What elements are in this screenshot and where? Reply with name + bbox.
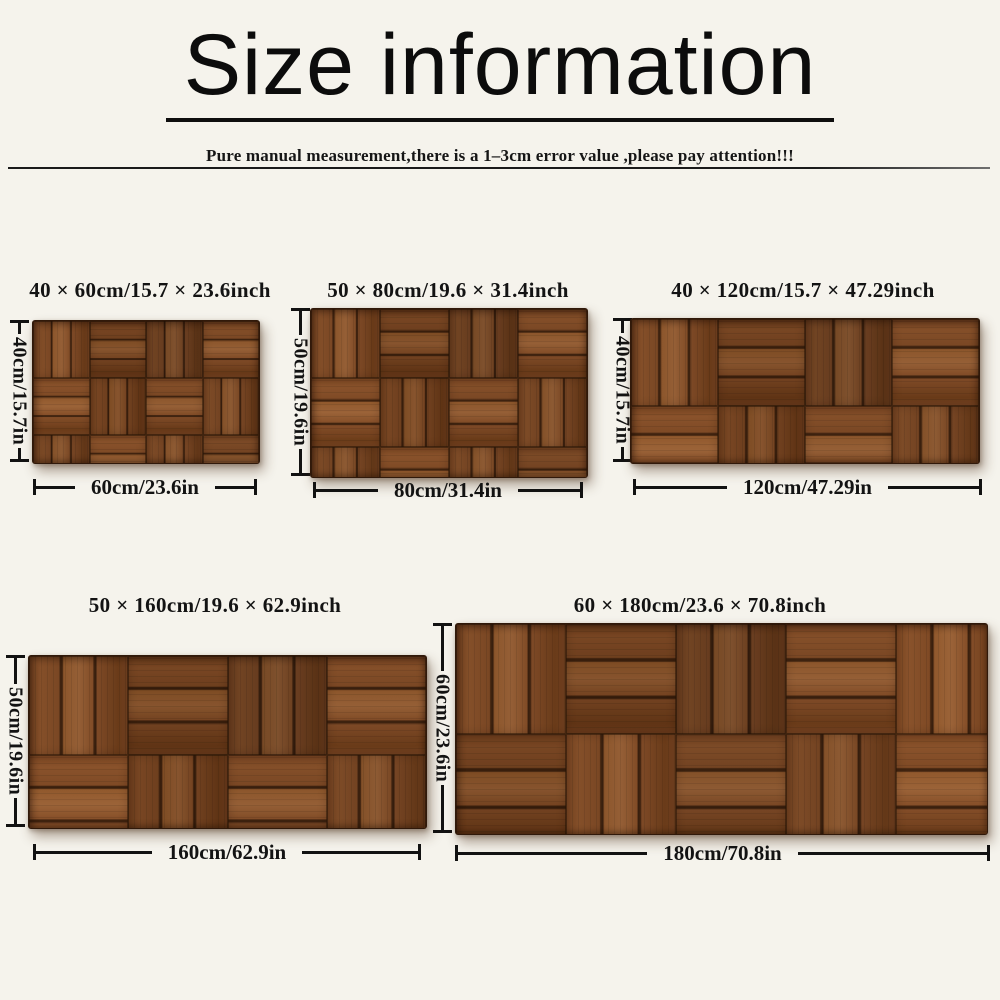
parquet-tile bbox=[456, 624, 566, 734]
parquet-tile bbox=[380, 447, 449, 478]
parquet-tile bbox=[146, 378, 203, 435]
parquet-tile bbox=[449, 447, 518, 478]
dimension-line bbox=[441, 785, 444, 830]
dimension-line bbox=[299, 449, 302, 473]
width-dimension-label: 80cm/31.4in bbox=[394, 478, 502, 503]
parquet-tile bbox=[33, 378, 90, 435]
parquet-tile bbox=[896, 734, 988, 835]
mat-preview-50x80 bbox=[310, 308, 588, 478]
parquet-tile bbox=[892, 406, 979, 464]
width-dimension: 180cm/70.8in bbox=[455, 842, 990, 864]
size-label: 60 × 180cm/23.6 × 70.8inch bbox=[500, 593, 900, 618]
parquet-tile bbox=[90, 321, 147, 378]
parquet-tile bbox=[90, 378, 147, 435]
parquet-tile bbox=[676, 624, 786, 734]
parquet-tile bbox=[631, 319, 718, 406]
mat-preview-50x160 bbox=[28, 655, 427, 829]
figure-60x180: 60 × 180cm/23.6 × 70.8inch 60cm/23.6in 1… bbox=[430, 588, 1000, 888]
dimension-cap bbox=[580, 482, 583, 498]
dimension-line bbox=[18, 448, 21, 459]
parquet-tile bbox=[33, 435, 90, 464]
dimension-cap bbox=[979, 479, 982, 495]
height-dimension: 40cm/15.7in bbox=[612, 318, 632, 462]
mat-preview-40x120 bbox=[630, 318, 980, 464]
parquet-tile bbox=[311, 378, 380, 447]
parquet-tile bbox=[146, 435, 203, 464]
parquet-tile bbox=[327, 656, 426, 755]
parquet-tile bbox=[228, 755, 327, 829]
dimension-line bbox=[798, 852, 987, 855]
dimension-cap bbox=[6, 824, 25, 827]
dimension-cap bbox=[613, 459, 632, 462]
dimension-line bbox=[215, 486, 254, 489]
parquet-tile bbox=[566, 624, 676, 734]
width-dimension-label: 160cm/62.9in bbox=[168, 840, 286, 865]
dimension-line bbox=[636, 486, 727, 489]
parquet-tile bbox=[786, 734, 896, 835]
width-dimension-label: 180cm/70.8in bbox=[663, 841, 781, 866]
parquet-tile bbox=[676, 734, 786, 835]
dimension-line bbox=[518, 489, 580, 492]
parquet-tile bbox=[805, 319, 892, 406]
height-dimension: 50cm/19.6in bbox=[5, 655, 25, 827]
parquet-tile bbox=[203, 435, 260, 464]
dimension-cap bbox=[418, 844, 421, 860]
parquet-tile bbox=[327, 755, 426, 829]
dimension-cap bbox=[433, 830, 452, 833]
parquet-tile bbox=[518, 447, 587, 478]
page-title-text: Size information bbox=[166, 22, 835, 122]
dimension-line bbox=[441, 626, 444, 671]
parquet-tile bbox=[518, 378, 587, 447]
height-dimension-label: 50cm/19.6in bbox=[289, 338, 312, 446]
parquet-tile bbox=[786, 624, 896, 734]
dimension-line bbox=[36, 486, 75, 489]
dimension-line bbox=[621, 447, 624, 459]
width-dimension: 60cm/23.6in bbox=[33, 476, 257, 498]
parquet-tile bbox=[203, 378, 260, 435]
parquet-tile bbox=[380, 378, 449, 447]
parquet-tile bbox=[456, 734, 566, 835]
parquet-tile bbox=[896, 624, 988, 734]
dimension-cap bbox=[291, 473, 310, 476]
parquet-tile bbox=[449, 378, 518, 447]
parquet-tile bbox=[29, 755, 128, 829]
dimension-line bbox=[621, 321, 624, 333]
parquet-tile bbox=[128, 755, 227, 829]
height-dimension-label: 40cm/15.7in bbox=[8, 337, 31, 445]
height-dimension-label: 60cm/23.6in bbox=[431, 674, 454, 782]
mat-preview-60x180 bbox=[455, 623, 988, 835]
dimension-line bbox=[18, 323, 21, 334]
dimension-line bbox=[302, 851, 418, 854]
parquet-tile bbox=[90, 435, 147, 464]
parquet-tile bbox=[228, 656, 327, 755]
size-label: 40 × 60cm/15.7 × 23.6inch bbox=[0, 278, 300, 303]
parquet-tile bbox=[449, 309, 518, 378]
figure-40x60: 40 × 60cm/15.7 × 23.6inch 40cm/15.7in 60… bbox=[0, 276, 300, 516]
parquet-tile bbox=[29, 656, 128, 755]
parquet-tile bbox=[146, 321, 203, 378]
size-label: 50 × 160cm/19.6 × 62.9inch bbox=[0, 593, 430, 618]
parquet-tile bbox=[631, 406, 718, 464]
parquet-tile bbox=[805, 406, 892, 464]
height-dimension: 40cm/15.7in bbox=[9, 320, 29, 462]
width-dimension: 80cm/31.4in bbox=[313, 479, 583, 501]
dimension-cap bbox=[10, 459, 29, 462]
parquet-tile bbox=[311, 309, 380, 378]
width-dimension-label: 60cm/23.6in bbox=[91, 475, 199, 500]
height-dimension-label: 50cm/19.6in bbox=[4, 687, 27, 795]
parquet-tile bbox=[518, 309, 587, 378]
size-information-page: { "header": { "title": "Size information… bbox=[0, 0, 1000, 1000]
mat-preview-40x60 bbox=[32, 320, 260, 464]
width-dimension: 160cm/62.9in bbox=[33, 841, 421, 863]
height-dimension: 50cm/19.6in bbox=[290, 308, 310, 476]
page-title: Size information bbox=[0, 0, 1000, 122]
figure-50x80: 50 × 80cm/19.6 × 31.4inch 50cm/19.6in 80… bbox=[290, 276, 600, 516]
parquet-tile bbox=[566, 734, 676, 835]
dimension-cap bbox=[254, 479, 257, 495]
height-dimension: 60cm/23.6in bbox=[432, 623, 452, 833]
dimension-line bbox=[888, 486, 979, 489]
dimension-line bbox=[14, 798, 17, 824]
dimension-cap bbox=[987, 845, 990, 861]
parquet-tile bbox=[718, 406, 805, 464]
divider-line bbox=[8, 167, 990, 169]
parquet-tile bbox=[33, 321, 90, 378]
dimension-line bbox=[299, 311, 302, 335]
parquet-tile bbox=[203, 321, 260, 378]
size-label: 40 × 120cm/15.7 × 47.29inch bbox=[623, 278, 983, 303]
dimension-line bbox=[14, 658, 17, 684]
parquet-tile bbox=[311, 447, 380, 478]
parquet-tile bbox=[380, 309, 449, 378]
dimension-line bbox=[458, 852, 647, 855]
figure-50x160: 50 × 160cm/19.6 × 62.9inch 50cm/19.6in 1… bbox=[0, 588, 440, 888]
dimension-line bbox=[36, 851, 152, 854]
parquet-tile bbox=[718, 319, 805, 406]
width-dimension: 120cm/47.29in bbox=[633, 476, 982, 498]
measurement-note: Pure manual measurement,there is a 1–3cm… bbox=[0, 146, 1000, 166]
size-label: 50 × 80cm/19.6 × 31.4inch bbox=[298, 278, 598, 303]
dimension-line bbox=[316, 489, 378, 492]
width-dimension-label: 120cm/47.29in bbox=[743, 475, 872, 500]
figure-40x120: 40 × 120cm/15.7 × 47.29inch 40cm/15.7in … bbox=[600, 276, 1000, 516]
parquet-tile bbox=[128, 656, 227, 755]
parquet-tile bbox=[892, 319, 979, 406]
